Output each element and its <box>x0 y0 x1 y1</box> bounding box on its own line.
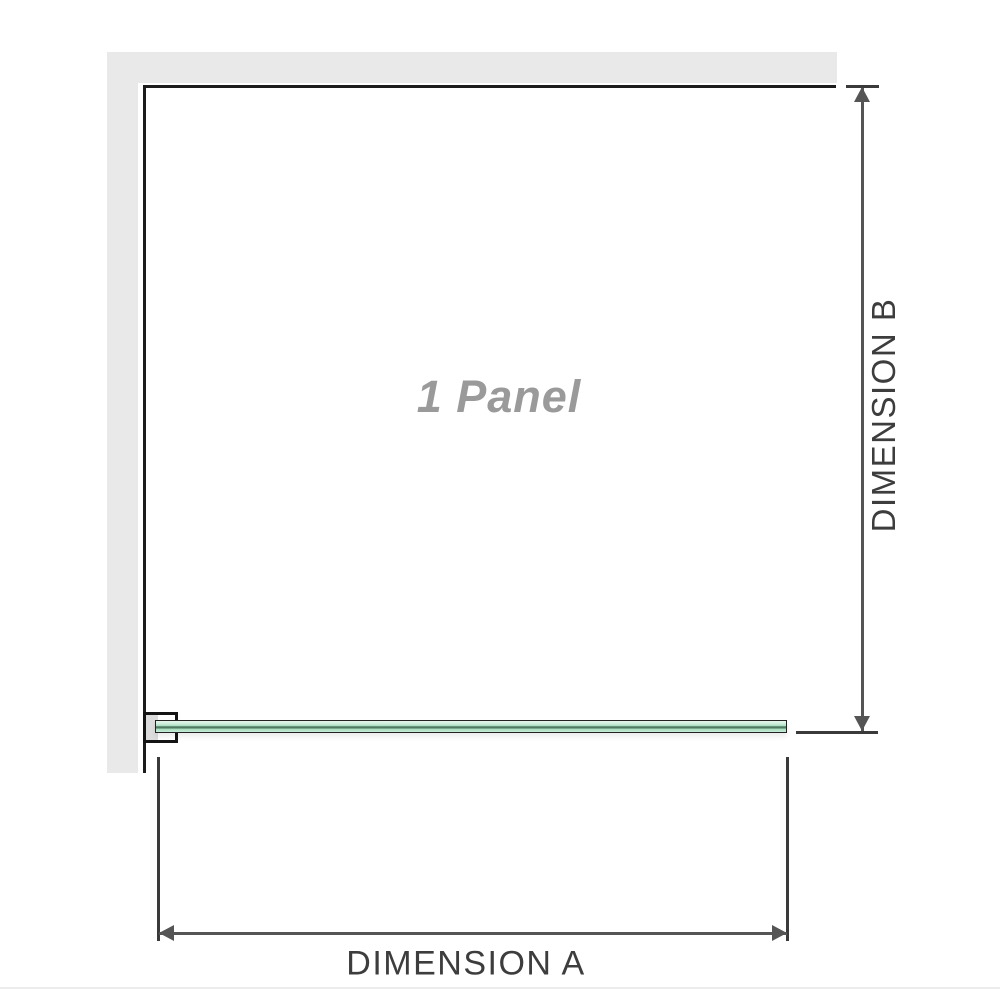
dimension-b-label: DIMENSION B <box>865 298 903 533</box>
wall-left-bar <box>107 52 138 773</box>
panel-count-label: 1 Panel <box>417 371 582 423</box>
dimension-diagram: 1 Panel DIMENSION B DIMENSION A <box>0 0 1000 1000</box>
arrow-up-icon <box>854 87 870 102</box>
dimension-a-extension-left <box>157 757 160 941</box>
arrow-left-icon <box>159 925 174 941</box>
wall-top-bar <box>107 52 837 83</box>
dimension-a-extension-right <box>786 757 789 941</box>
glass-panel <box>155 720 787 733</box>
arrow-down-icon <box>854 716 870 731</box>
arrow-right-icon <box>772 925 787 941</box>
page-divider <box>0 987 1000 989</box>
dimension-b-line <box>861 88 864 731</box>
panel-area-border-left <box>143 85 146 773</box>
dimension-b-tick-bottom <box>796 731 878 734</box>
panel-area-border-top <box>143 85 836 88</box>
dimension-a-label: DIMENSION A <box>346 945 585 984</box>
dimension-a-line <box>159 932 787 935</box>
